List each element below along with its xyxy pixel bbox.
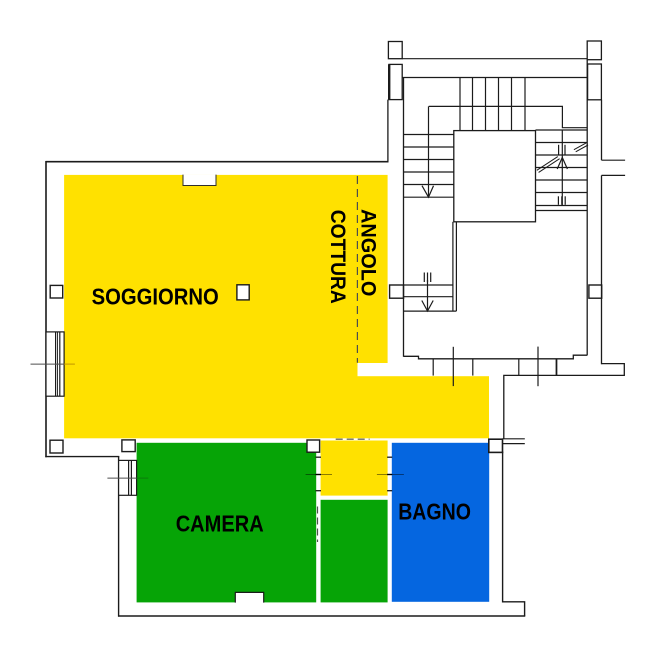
svg-text:SOGGIORNO: SOGGIORNO	[92, 284, 219, 310]
svg-text:CAMERA: CAMERA	[176, 511, 264, 537]
svg-text:BAGNO: BAGNO	[398, 499, 471, 525]
